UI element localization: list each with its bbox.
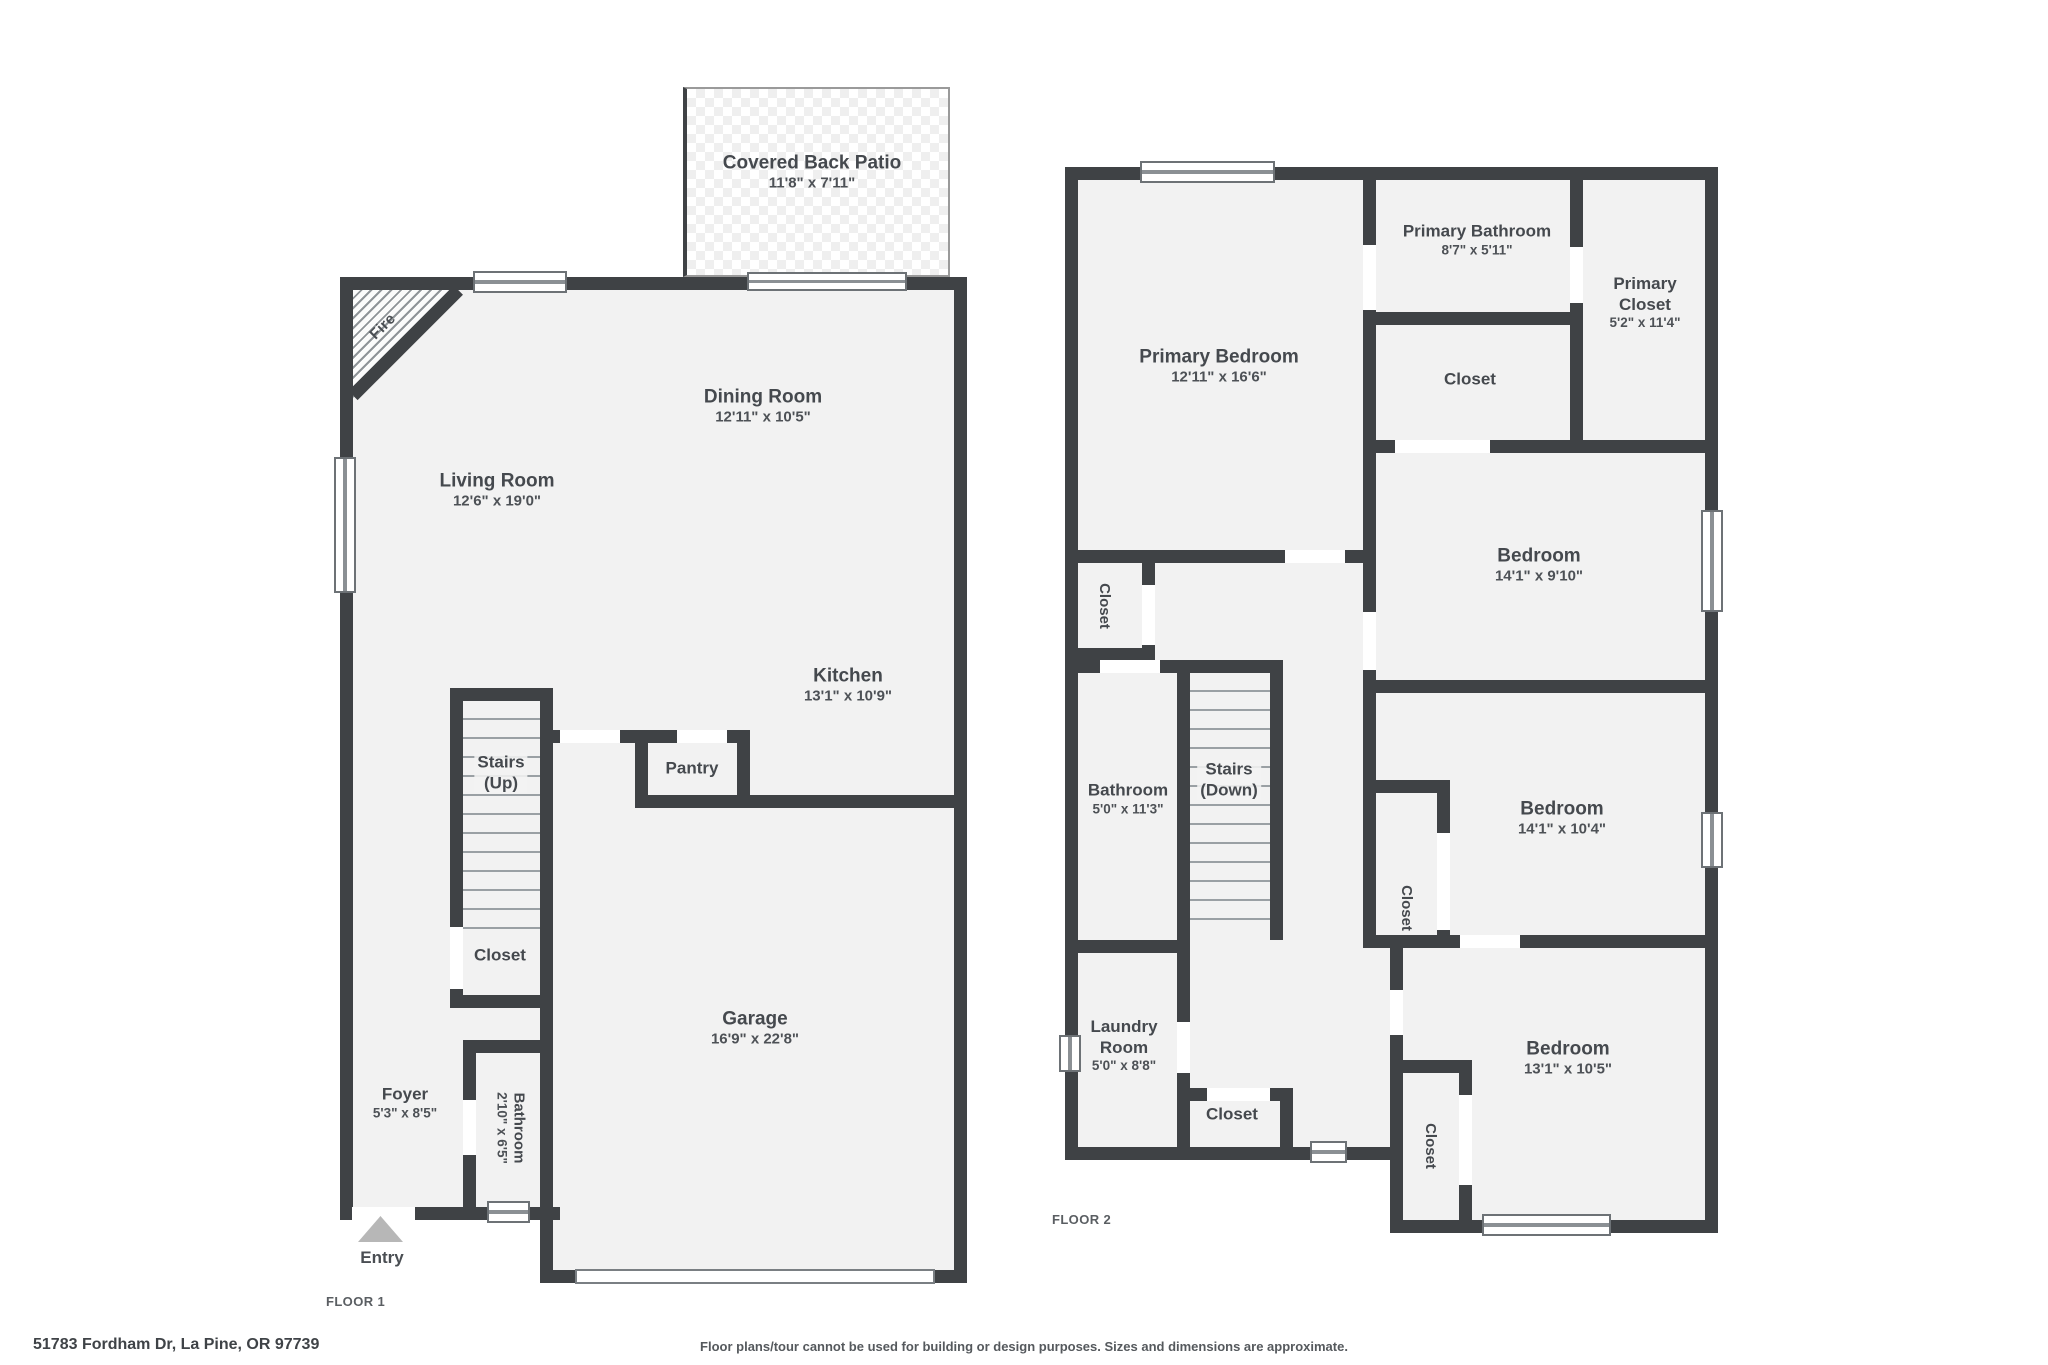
floorplan-page: Fire Entry Covered Back Patio11'8" x 7'1… xyxy=(0,0,2048,1365)
wall xyxy=(1177,660,1190,1160)
window xyxy=(487,1201,530,1223)
door-opening xyxy=(463,1100,476,1155)
floor-area xyxy=(340,277,967,1220)
room-label-patio: Covered Back Patio11'8" x 7'11" xyxy=(723,151,901,192)
room-label-foyer: Foyer5'3" x 8'5" xyxy=(373,1084,437,1121)
room-label-laundry: LaundryRoom5'0" x 8'8" xyxy=(1090,1017,1157,1075)
window xyxy=(334,457,356,593)
wall xyxy=(1705,167,1718,1233)
wall xyxy=(1363,680,1718,693)
wall xyxy=(1363,935,1718,948)
window xyxy=(1701,812,1723,868)
door-opening xyxy=(1100,660,1160,673)
room-label-bedroom2: Bedroom14'1" x 10'4" xyxy=(1518,797,1606,838)
room-label-primary-closet: PrimaryCloset5'2" x 11'4" xyxy=(1609,274,1680,332)
room-label-stairs-down: Stairs(Down) xyxy=(1197,759,1261,800)
entry-label: Entry xyxy=(360,1248,403,1268)
room-label-kitchen: Kitchen13'1" x 10'9" xyxy=(804,664,892,705)
door-opening xyxy=(1285,550,1345,563)
room-label-stairs-up: Stairs(Up) xyxy=(474,752,527,793)
window xyxy=(1059,1035,1081,1072)
room-label-b2-closet: Closet xyxy=(1397,885,1415,931)
wall xyxy=(540,688,553,1283)
room-label-pb-closet: Closet xyxy=(1444,370,1496,391)
door-opening xyxy=(352,1207,415,1220)
wall xyxy=(1065,660,1283,673)
door-opening xyxy=(1459,1095,1472,1185)
door-opening xyxy=(1390,990,1403,1035)
property-address: 51783 Fordham Dr, La Pine, OR 97739 xyxy=(33,1336,319,1354)
door-opening xyxy=(1570,247,1583,303)
wall xyxy=(450,995,553,1008)
door-opening xyxy=(1460,935,1520,948)
room-label-primary-bathroom: Primary Bathroom8'7" x 5'11" xyxy=(1403,221,1551,258)
floor1-tag: FLOOR 1 xyxy=(326,1294,385,1309)
room-label-garage: Garage16'9" x 22'8" xyxy=(711,1007,799,1048)
wall xyxy=(1270,660,1283,940)
door-opening xyxy=(1207,1088,1270,1101)
room-label-closet-f1: Closet xyxy=(474,946,526,967)
window xyxy=(1140,161,1275,183)
door-opening xyxy=(1363,612,1376,670)
room-label-dining: Dining Room12'11" x 10'5" xyxy=(704,385,822,426)
room-label-bathroom-f1: Bathroom2'10" x 6'5" xyxy=(493,1092,528,1164)
wall xyxy=(1570,167,1583,453)
room-label-bedroom3: Bedroom13'1" x 10'5" xyxy=(1524,1037,1612,1078)
room-label-bathroom-f2: Bathroom5'0" x 11'3" xyxy=(1088,780,1168,817)
room-label-hall-closet: Closet xyxy=(1095,583,1113,629)
door-opening xyxy=(1363,245,1376,310)
wall xyxy=(340,277,353,1220)
garage-door xyxy=(575,1269,935,1284)
door-opening xyxy=(450,927,463,989)
wall xyxy=(954,277,967,1283)
door-opening xyxy=(1437,833,1450,930)
window xyxy=(1310,1141,1347,1163)
window xyxy=(1482,1214,1611,1236)
wall xyxy=(450,688,553,701)
room-label-us-closet: Closet xyxy=(1206,1105,1258,1126)
window xyxy=(747,272,907,291)
door-opening xyxy=(1142,585,1155,645)
door-opening xyxy=(677,730,727,743)
room-label-pantry: Pantry xyxy=(666,759,719,780)
stair-treads xyxy=(463,701,540,930)
room-label-bedroom1: Bedroom14'1" x 9'10" xyxy=(1495,544,1583,585)
wall xyxy=(635,795,967,808)
window xyxy=(473,271,567,293)
room-label-primary-bedroom: Primary Bedroom12'11" x 16'6" xyxy=(1139,345,1298,386)
room-label-b3-closet: Closet xyxy=(1421,1123,1439,1169)
wall xyxy=(463,1040,553,1053)
wall xyxy=(1376,312,1583,325)
window xyxy=(1701,510,1723,612)
door-opening xyxy=(1395,440,1490,453)
room-label-living: Living Room12'6" x 19'0" xyxy=(439,469,554,510)
door-opening xyxy=(560,730,620,743)
wall xyxy=(1065,1147,1403,1160)
wall xyxy=(1065,940,1190,953)
wall xyxy=(1280,1088,1293,1160)
disclaimer-text: Floor plans/tour cannot be used for buil… xyxy=(700,1339,1348,1354)
floor2-tag: FLOOR 2 xyxy=(1052,1212,1111,1227)
door-opening xyxy=(1177,1022,1190,1073)
